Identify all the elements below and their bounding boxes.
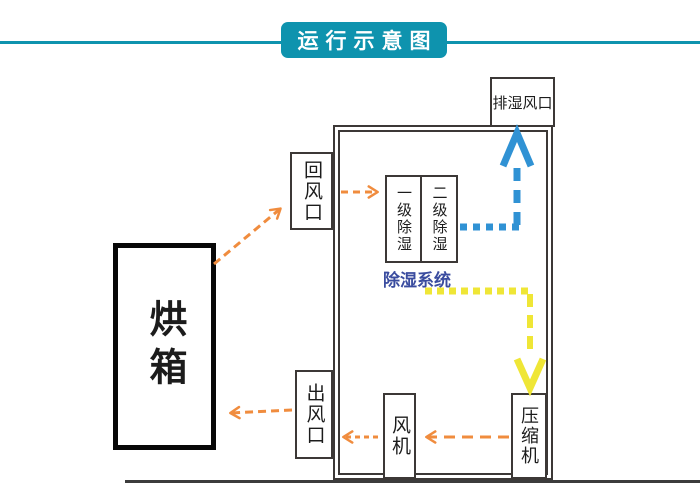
fan-box: 风机 [383,393,416,479]
exhaust-vent-box: 排湿风口 [490,77,555,127]
dehumid-stage2-box: 二级除湿 [420,175,458,263]
oven-box: 烘箱 [113,243,216,450]
diagram-title-banner: 运行示意图 [281,22,447,58]
outlet-air-vent-box: 出风口 [295,370,333,459]
flow-arrow-oven-to-return-vent [214,209,280,264]
compressor-box: 压缩机 [511,393,547,479]
ground-line [125,480,700,483]
dehumid-stage1-box: 一级除湿 [385,175,422,263]
dehumid-system-label: 除湿系统 [383,266,463,291]
flow-arrow-outlet-vent-to-oven [231,410,292,413]
return-air-vent-box: 回风口 [290,152,333,230]
operation-diagram: 运行示意图 烘箱 排湿风口 回风口 出风口 一级除湿 二级除湿 除湿系统 风机 … [0,0,700,500]
